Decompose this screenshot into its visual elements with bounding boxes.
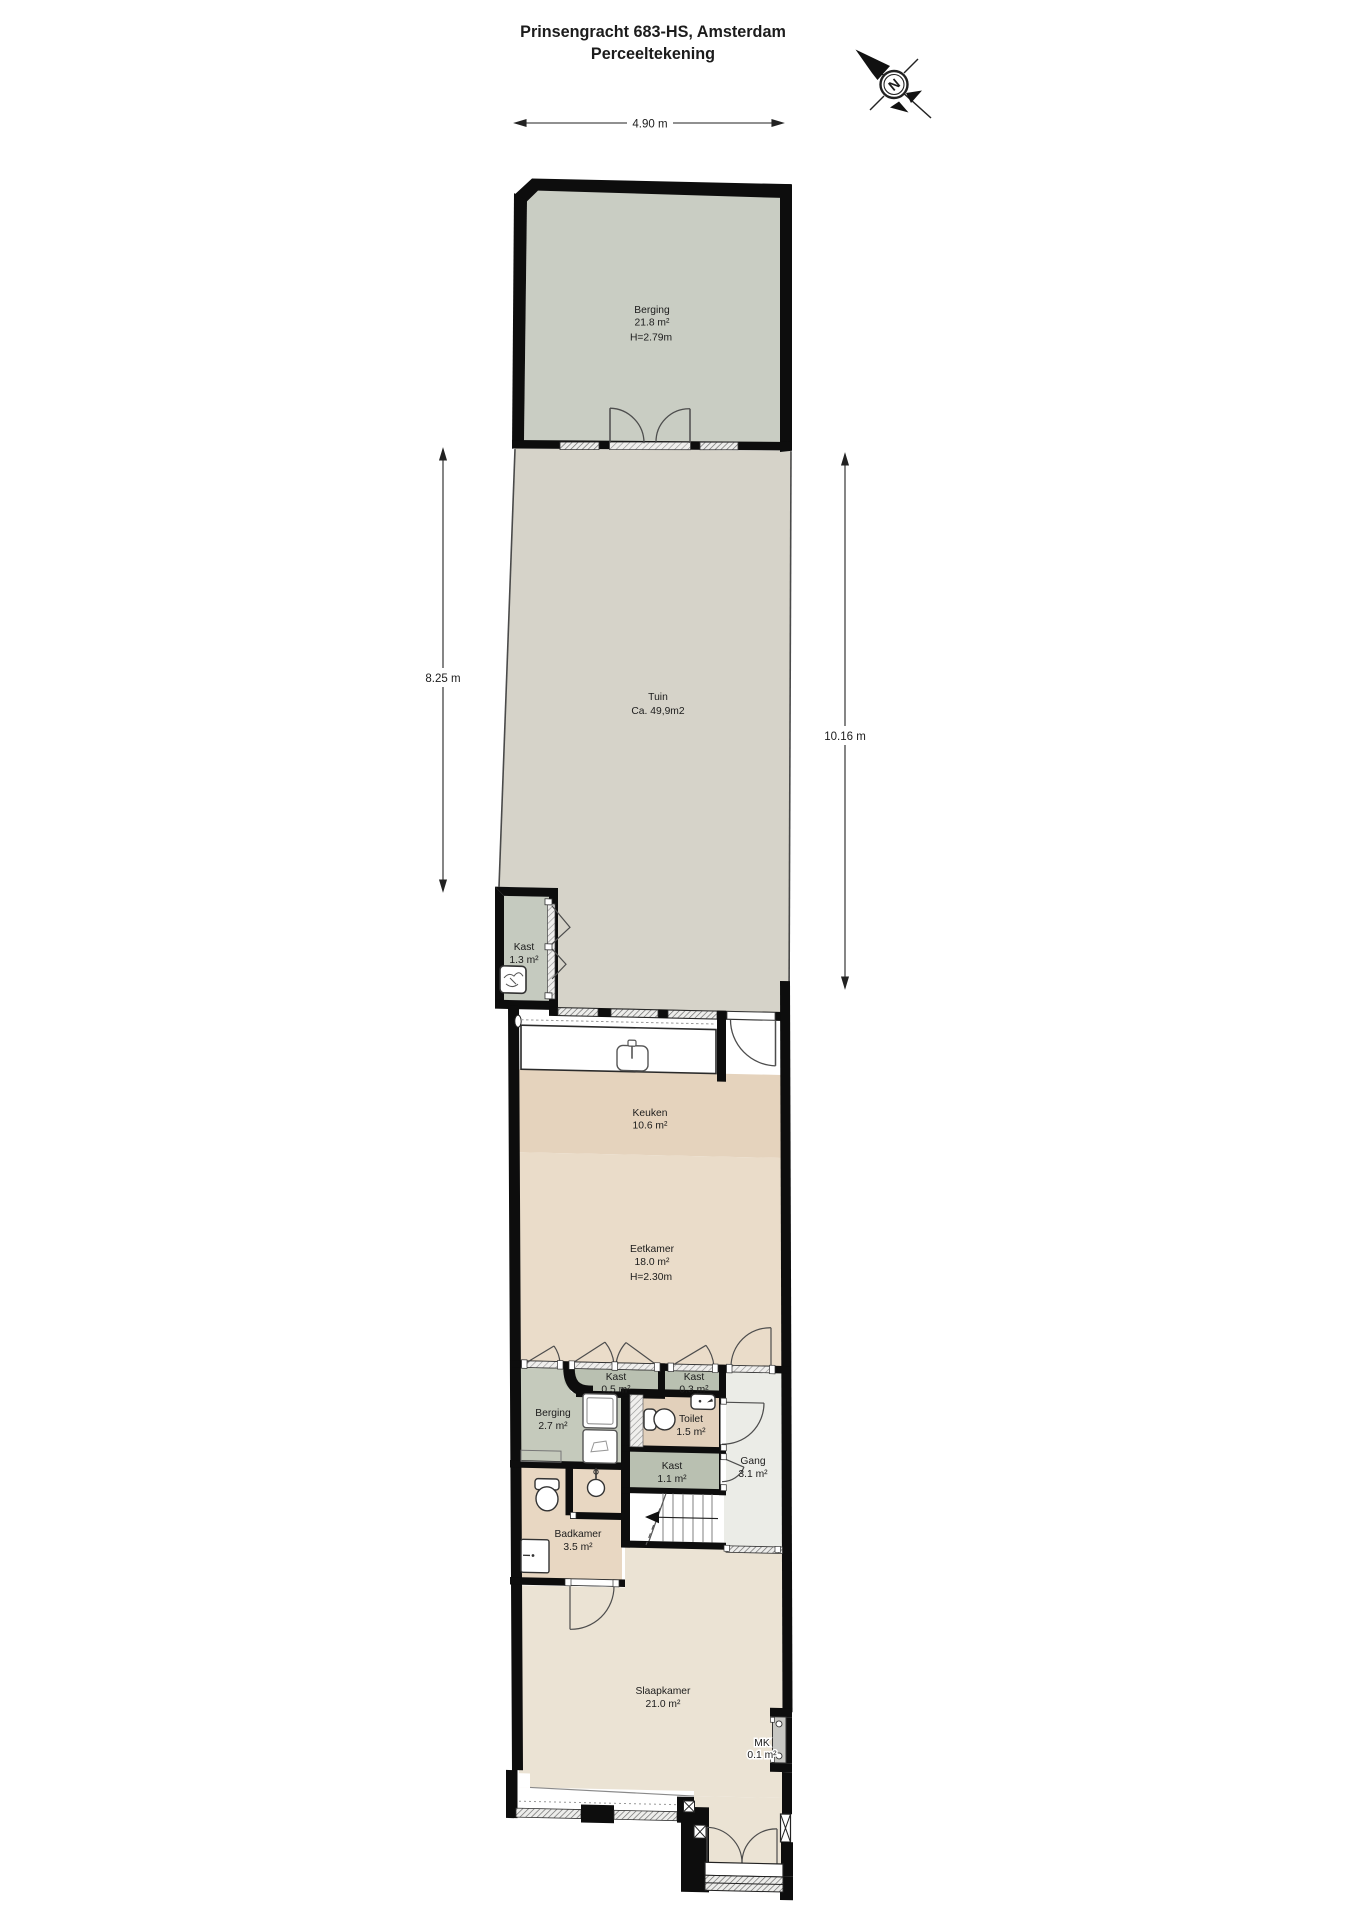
svg-text:4.90 m: 4.90 m (632, 119, 667, 131)
svg-text:10.16 m: 10.16 m (824, 731, 866, 743)
svg-text:Prinsengracht 683-HS, Amsterda: Prinsengracht 683-HS, Amsterdam (520, 23, 786, 41)
svg-text:Perceeltekening: Perceeltekening (591, 45, 715, 63)
svg-text:Badkamer: Badkamer (555, 1529, 603, 1540)
svg-text:Berging: Berging (535, 1408, 571, 1419)
svg-text:21.8 m²: 21.8 m² (635, 318, 670, 329)
svg-text:18.0 m²: 18.0 m² (635, 1257, 670, 1268)
svg-text:Toilet: Toilet (679, 1414, 703, 1425)
svg-text:Tuin: Tuin (648, 692, 668, 703)
svg-text:Kast: Kast (684, 1372, 705, 1383)
svg-text:Gang: Gang (740, 1456, 765, 1467)
svg-text:2.7 m²: 2.7 m² (538, 1421, 568, 1432)
svg-text:0.5 m²: 0.5 m² (601, 1385, 631, 1396)
svg-text:Keuken: Keuken (633, 1108, 668, 1119)
svg-text:Kast: Kast (514, 942, 535, 953)
svg-text:3.5 m²: 3.5 m² (563, 1542, 593, 1553)
svg-text:0.3 m²: 0.3 m² (679, 1385, 709, 1396)
svg-text:Slaapkamer: Slaapkamer (636, 1686, 692, 1697)
svg-text:21.0 m²: 21.0 m² (646, 1699, 681, 1710)
svg-text:0.1 m²: 0.1 m² (747, 1750, 777, 1761)
svg-text:Ca. 49,9m2: Ca. 49,9m2 (631, 706, 685, 717)
svg-text:1.5 m²: 1.5 m² (676, 1427, 706, 1438)
svg-text:Eetkamer: Eetkamer (630, 1244, 675, 1255)
svg-text:Berging: Berging (634, 305, 670, 316)
svg-text:8.25 m: 8.25 m (425, 673, 460, 685)
svg-text:Kast: Kast (662, 1461, 683, 1472)
svg-text:H=2.30m: H=2.30m (630, 1272, 672, 1283)
svg-text:3.1 m²: 3.1 m² (738, 1469, 768, 1480)
svg-text:H=2.79m: H=2.79m (630, 333, 672, 344)
svg-text:1.3 m²: 1.3 m² (509, 955, 539, 966)
svg-text:1.1 m²: 1.1 m² (657, 1474, 687, 1485)
svg-text:MK: MK (754, 1738, 770, 1749)
svg-text:Kast: Kast (606, 1372, 627, 1383)
svg-text:10.6 m²: 10.6 m² (633, 1121, 668, 1132)
